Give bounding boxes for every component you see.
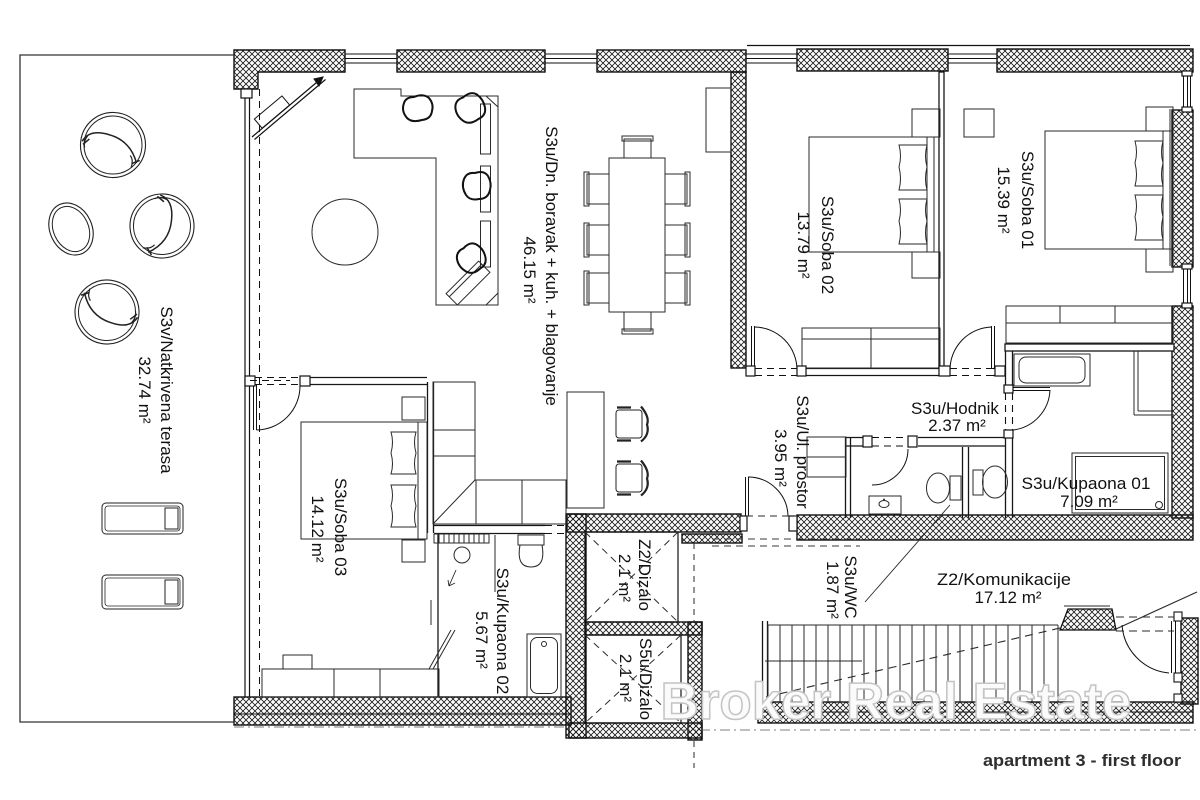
svg-text:13.79 m²: 13.79 m² (794, 211, 813, 278)
svg-text:2.1 m²: 2.1 m² (615, 554, 634, 603)
svg-text:S3u/Kupaona 01: S3u/Kupaona 01 (1022, 474, 1151, 493)
svg-text:32.74 m²: 32.74 m² (135, 356, 154, 423)
svg-text:S3u/Soba 03: S3u/Soba 03 (331, 478, 350, 576)
svg-text:Z2/Komunikacije: Z2/Komunikacije (937, 570, 1071, 589)
svg-text:3.95 m²: 3.95 m² (771, 429, 790, 487)
svg-text:17.12 m²: 17.12 m² (974, 588, 1041, 607)
svg-text:2.37 m²: 2.37 m² (928, 416, 986, 435)
svg-text:S3u/Soba 02: S3u/Soba 02 (818, 196, 837, 294)
svg-text:1.87 m²: 1.87 m² (823, 561, 842, 619)
svg-text:S3u/Kupaona 02: S3u/Kupaona 02 (493, 568, 512, 695)
svg-text:S3v/Natkrivena terasa: S3v/Natkrivena terasa (157, 306, 176, 474)
svg-text:14.12 m²: 14.12 m² (308, 495, 327, 562)
svg-text:S3u/WC: S3u/WC (841, 555, 860, 618)
svg-text:S3u/Dn. boravak + kuh. + blago: S3u/Dn. boravak + kuh. + blagovanje (542, 126, 561, 406)
svg-text:46.15 m²: 46.15 m² (520, 236, 539, 303)
svg-text:2.1 m²: 2.1 m² (616, 654, 635, 703)
svg-text:S5u/Dizalo: S5u/Dizalo (636, 638, 655, 720)
svg-text:Broker Real Estate: Broker Real Estate (661, 673, 1132, 731)
svg-text:S3u/Soba 01: S3u/Soba 01 (1018, 151, 1037, 249)
svg-text:7.09 m²: 7.09 m² (1060, 492, 1118, 511)
svg-text:15.39 m²: 15.39 m² (994, 166, 1013, 233)
svg-text:5.67 m²: 5.67 m² (472, 611, 491, 669)
svg-text:Z2/Dizalo: Z2/Dizalo (635, 539, 654, 611)
svg-text:apartment 3 - first floor: apartment 3 - first floor (983, 751, 1181, 770)
svg-text:S3u/Ul. prostor: S3u/Ul. prostor (793, 395, 812, 509)
